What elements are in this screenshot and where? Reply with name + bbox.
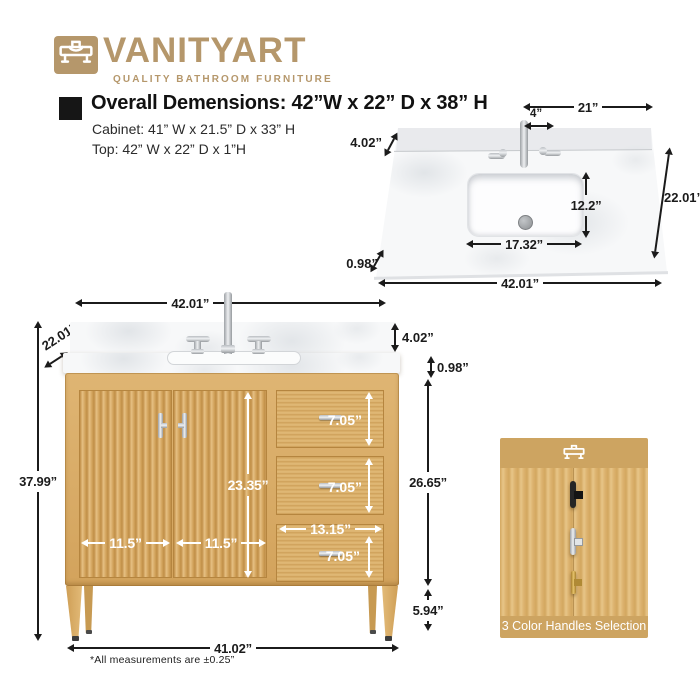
leg-front-right	[382, 586, 398, 638]
leg-back-right-foot	[370, 630, 376, 634]
measurement-tolerance-note: *All measurements are ±0.25”	[90, 654, 234, 666]
dim-leg-height: 5.94”	[408, 589, 448, 631]
door-pull-left-stem	[161, 423, 167, 428]
dim-overall-height: 37.99”	[15, 321, 61, 641]
dim-sink-width: 17.32”	[466, 237, 582, 251]
leg-front-left	[66, 586, 82, 638]
brand-wordmark: VANITYART	[103, 31, 306, 71]
handle-option-chrome-mount	[574, 538, 583, 546]
dim-drawer3-height	[362, 536, 376, 578]
faucet-spout-base	[221, 345, 235, 353]
dim-base-width: 41.02”	[67, 641, 399, 655]
dim-drawer2-height-label: 7.05”	[326, 479, 362, 495]
dim-edge-to-faucet: 21”	[523, 100, 653, 114]
spec-cabinet-dimensions: Cabinet: 41” W x 21.5” D x 33” H	[92, 121, 295, 137]
dim-drawer1-height-label: 7.05”	[326, 412, 362, 428]
handles-panel: 3 Color Handles Selection	[500, 438, 648, 638]
brand-tagline: QUALITY BATHROOM FURNITURE	[113, 74, 333, 85]
brand-logo-badge	[54, 36, 98, 74]
dim-counter-thickness-label: 0.98”	[437, 360, 469, 375]
faucet-handle-right-knob	[539, 147, 547, 155]
faucet-handle-left-knob	[499, 149, 507, 157]
product-spec-sheet: VANITYART QUALITY BATHROOM FURNITURE Ove…	[0, 0, 700, 700]
sink-rim-front-view	[167, 351, 301, 365]
dim-drawer1-height	[362, 392, 376, 446]
dim-cabinet-face-height: 26.65”	[404, 379, 452, 586]
dim-drawer-width: 13.15”	[279, 522, 382, 536]
sink-drain-icon	[518, 215, 533, 230]
dim-door2-width: 11.5”	[176, 536, 266, 550]
dim-backsplash-height	[388, 323, 402, 352]
handles-panel-title: 3 Color Handles Selection	[500, 616, 648, 638]
handles-panel-logo-icon	[559, 442, 589, 466]
dim-backsplash-depth-label: 4.02”	[350, 135, 382, 150]
leg-back-left-foot	[86, 630, 92, 634]
vanity-sink-icon	[54, 36, 98, 74]
dim-counter-depth-top-label: 22.01”	[664, 190, 700, 205]
dim-counter-thickness	[424, 356, 438, 378]
dim-faucet-offset	[524, 119, 554, 133]
faucet-handle-right-base	[252, 349, 265, 354]
dim-drawer2-height	[362, 458, 376, 513]
dim-counter-width-top: 42.01”	[378, 276, 662, 290]
dim-door1-width: 11.5”	[81, 536, 170, 550]
dim-drawer3-height-label: 7.05”	[324, 548, 360, 564]
handle-option-black-mount	[574, 491, 583, 499]
leg-back-left	[84, 586, 93, 633]
spec-overall-dimensions: Overall Demensions: 42”W x 22” D x 38” H	[91, 92, 488, 115]
handles-panel-wood-background	[500, 468, 648, 616]
door-pull-right-stem	[178, 423, 184, 428]
spec-bullet	[59, 97, 82, 120]
handle-option-gold-mount	[574, 579, 582, 586]
dim-backsplash-height-label: 4.02”	[402, 330, 434, 345]
faucet-handle-left-base	[191, 349, 204, 354]
leg-back-right	[368, 586, 377, 633]
spec-top-dimensions: Top: 42” W x 22” D x 1”H	[92, 141, 246, 157]
dim-sink-depth: 12.2”	[567, 172, 605, 238]
